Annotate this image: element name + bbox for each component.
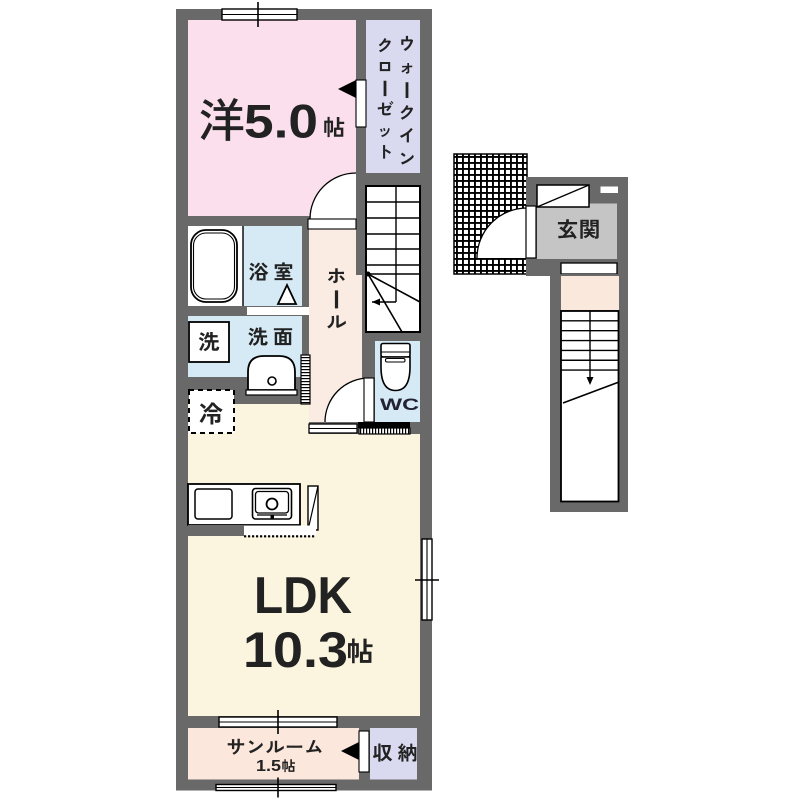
svg-text:WC: WC	[380, 395, 419, 414]
svg-text:10.3: 10.3	[243, 622, 348, 678]
svg-text:LDK: LDK	[254, 567, 352, 625]
svg-text:5.0: 5.0	[244, 95, 318, 148]
svg-text:1.5: 1.5	[256, 758, 281, 775]
